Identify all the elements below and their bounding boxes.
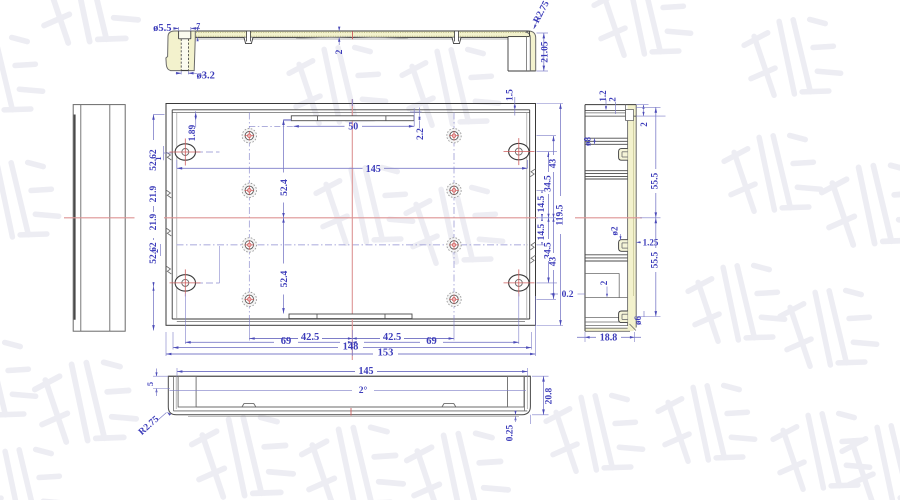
svg-text:0.2: 0.2 (562, 290, 574, 300)
svg-text:52.4: 52.4 (280, 270, 290, 287)
svg-text:7: 7 (196, 22, 200, 31)
svg-text:2: 2 (608, 97, 618, 102)
svg-text:50: 50 (348, 122, 358, 133)
svg-text:2: 2 (335, 49, 345, 54)
svg-text:1.2: 1.2 (598, 90, 608, 102)
svg-text:21.9: 21.9 (149, 185, 159, 202)
svg-text:1.25: 1.25 (643, 237, 659, 247)
svg-text:2: 2 (151, 249, 160, 253)
svg-text:69: 69 (281, 336, 292, 347)
svg-text:2: 2 (599, 280, 609, 285)
svg-text:ø5.5: ø5.5 (153, 23, 171, 34)
svg-text:153: 153 (378, 348, 394, 359)
svg-text:14.5: 14.5 (537, 223, 547, 240)
svg-text:ø8: ø8 (583, 137, 593, 147)
svg-text:52.4: 52.4 (280, 179, 290, 196)
svg-text:14.5: 14.5 (537, 195, 547, 212)
svg-text:0.25: 0.25 (505, 424, 515, 441)
svg-text:55.5: 55.5 (651, 251, 661, 268)
svg-text:18.8: 18.8 (600, 333, 618, 344)
svg-text:43: 43 (548, 257, 558, 267)
svg-text:69: 69 (426, 336, 437, 347)
svg-text:ø2: ø2 (610, 226, 620, 236)
svg-text:1.5: 1.5 (506, 89, 516, 101)
svg-text:55.5: 55.5 (651, 172, 661, 189)
svg-text:34.5: 34.5 (543, 175, 553, 192)
svg-text:21.05: 21.05 (540, 41, 550, 63)
svg-text:21.9: 21.9 (149, 213, 159, 230)
svg-text:2.2: 2.2 (416, 128, 426, 140)
svg-text:43: 43 (548, 159, 558, 169)
svg-text:1: 1 (154, 157, 163, 161)
svg-text:145: 145 (366, 164, 381, 175)
svg-text:ø6: ø6 (633, 316, 643, 326)
svg-text:42.5: 42.5 (301, 332, 319, 343)
svg-text:148: 148 (343, 341, 359, 352)
svg-text:42.5: 42.5 (383, 332, 401, 343)
svg-text:5: 5 (145, 382, 155, 386)
svg-text:119.5: 119.5 (555, 204, 565, 225)
svg-text:2°: 2° (359, 385, 368, 396)
svg-text:2: 2 (639, 122, 649, 127)
svg-text:145: 145 (359, 366, 374, 377)
svg-text:20.8: 20.8 (545, 387, 555, 404)
svg-text:1.89: 1.89 (188, 124, 198, 141)
